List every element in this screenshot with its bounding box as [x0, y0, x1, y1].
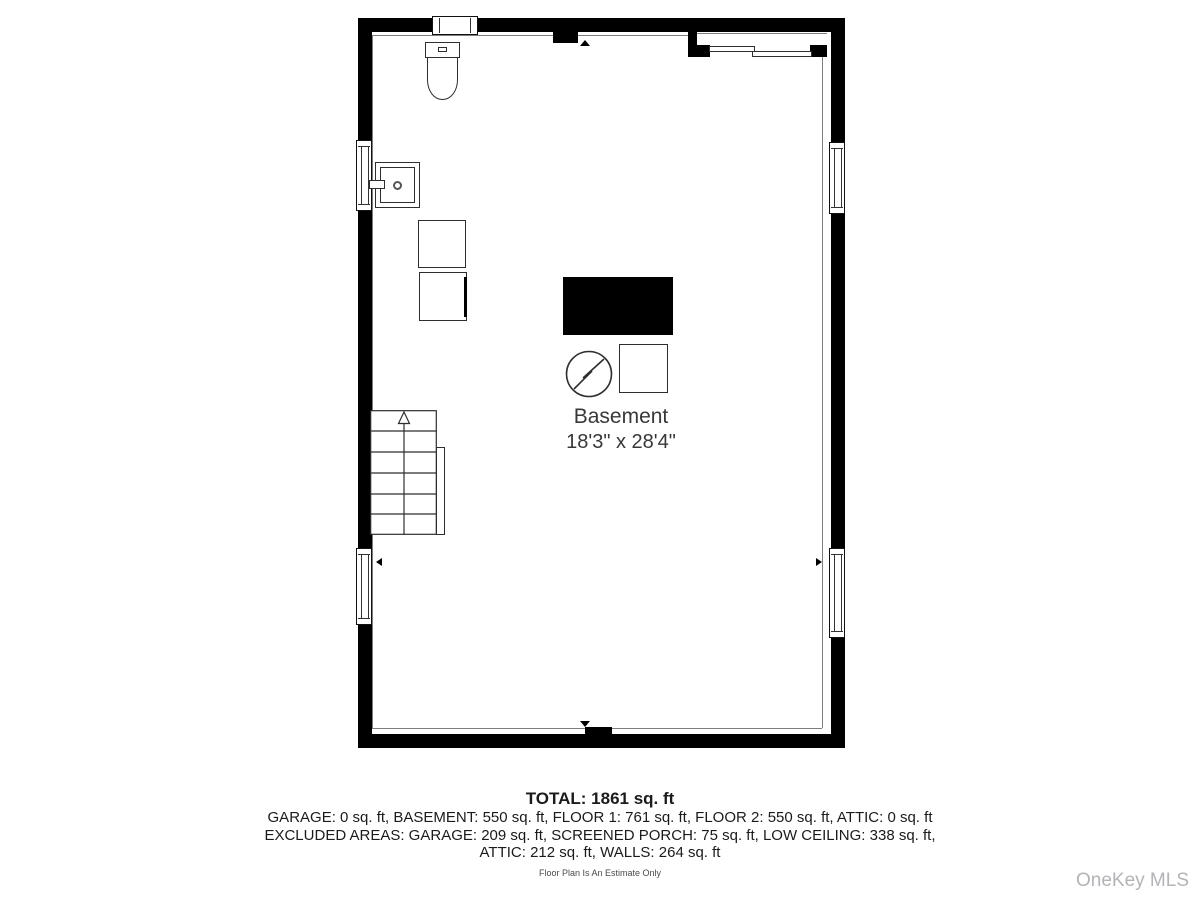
room-name: Basement	[521, 404, 721, 430]
summary-total: TOTAL: 1861 sq. ft	[0, 789, 1200, 809]
sink-drain	[393, 181, 402, 190]
interior-line-top-right	[578, 35, 688, 36]
window-left-upper-icon	[356, 140, 372, 211]
floor-plan-page: { "room_label": { "name": "Basement", "d…	[0, 0, 1200, 900]
sliding-door-panel-1	[709, 46, 755, 52]
interior-line-left	[372, 35, 373, 728]
door-stub-top	[553, 30, 578, 43]
marker-left-icon	[376, 558, 382, 566]
water-tank	[619, 344, 668, 393]
sliding-door-panel-2	[752, 51, 812, 57]
recess-block-right	[810, 45, 827, 57]
electric-panel-icon	[565, 350, 613, 398]
door-stub-bottom	[585, 727, 612, 739]
window-pane-line	[358, 618, 370, 619]
window-left-lower-icon	[356, 548, 372, 625]
window-pane-line	[439, 18, 440, 33]
disclaimer-text: Floor Plan Is An Estimate Only	[0, 868, 1200, 878]
interior-line-top-left	[372, 35, 553, 36]
recess-wall-stub	[688, 32, 697, 57]
summary-excluded-1: EXCLUDED AREAS: GARAGE: 209 sq. ft, SCRE…	[0, 827, 1200, 845]
stair-rail	[436, 447, 445, 535]
furnace-unit	[563, 277, 673, 335]
sink-faucet	[369, 180, 385, 189]
storage-box-1	[418, 220, 466, 268]
door-arrow-up-icon	[580, 40, 590, 46]
onekey-mls-watermark: OneKey MLS	[1076, 870, 1189, 892]
window-pane-line	[470, 18, 471, 33]
room-label: Basement 18'3" x 28'4"	[521, 404, 721, 454]
window-pane-line	[831, 207, 843, 208]
storage-box-2-edge	[464, 277, 467, 317]
door-arrow-down-icon	[580, 721, 590, 727]
window-top-icon	[432, 16, 478, 35]
summary-excluded-2: ATTIC: 212 sq. ft, WALLS: 264 sq. ft	[0, 844, 1200, 862]
window-pane-line	[361, 147, 369, 204]
window-pane-line	[834, 555, 842, 631]
floor-plan: Basement 18'3" x 28'4"	[0, 0, 1200, 900]
marker-right-icon	[816, 558, 822, 566]
window-pane-line	[831, 631, 843, 632]
window-pane-line	[361, 555, 369, 618]
storage-box-2	[419, 272, 467, 321]
toilet-bowl	[427, 57, 458, 100]
exterior-wall-right	[831, 18, 845, 748]
interior-line-right	[822, 57, 823, 728]
toilet-flush-button	[438, 47, 447, 52]
exterior-wall-left	[358, 18, 372, 748]
summary-areas: GARAGE: 0 sq. ft, BASEMENT: 550 sq. ft, …	[0, 809, 1200, 827]
window-pane-line	[358, 204, 370, 205]
window-pane-line	[834, 149, 842, 207]
interior-line-porch	[697, 33, 827, 34]
window-right-upper-icon	[829, 142, 845, 214]
room-dimensions: 18'3" x 28'4"	[521, 430, 721, 454]
area-summary: TOTAL: 1861 sq. ft GARAGE: 0 sq. ft, BAS…	[0, 789, 1200, 862]
stairs-up-icon	[370, 410, 437, 535]
window-right-lower-icon	[829, 548, 845, 638]
